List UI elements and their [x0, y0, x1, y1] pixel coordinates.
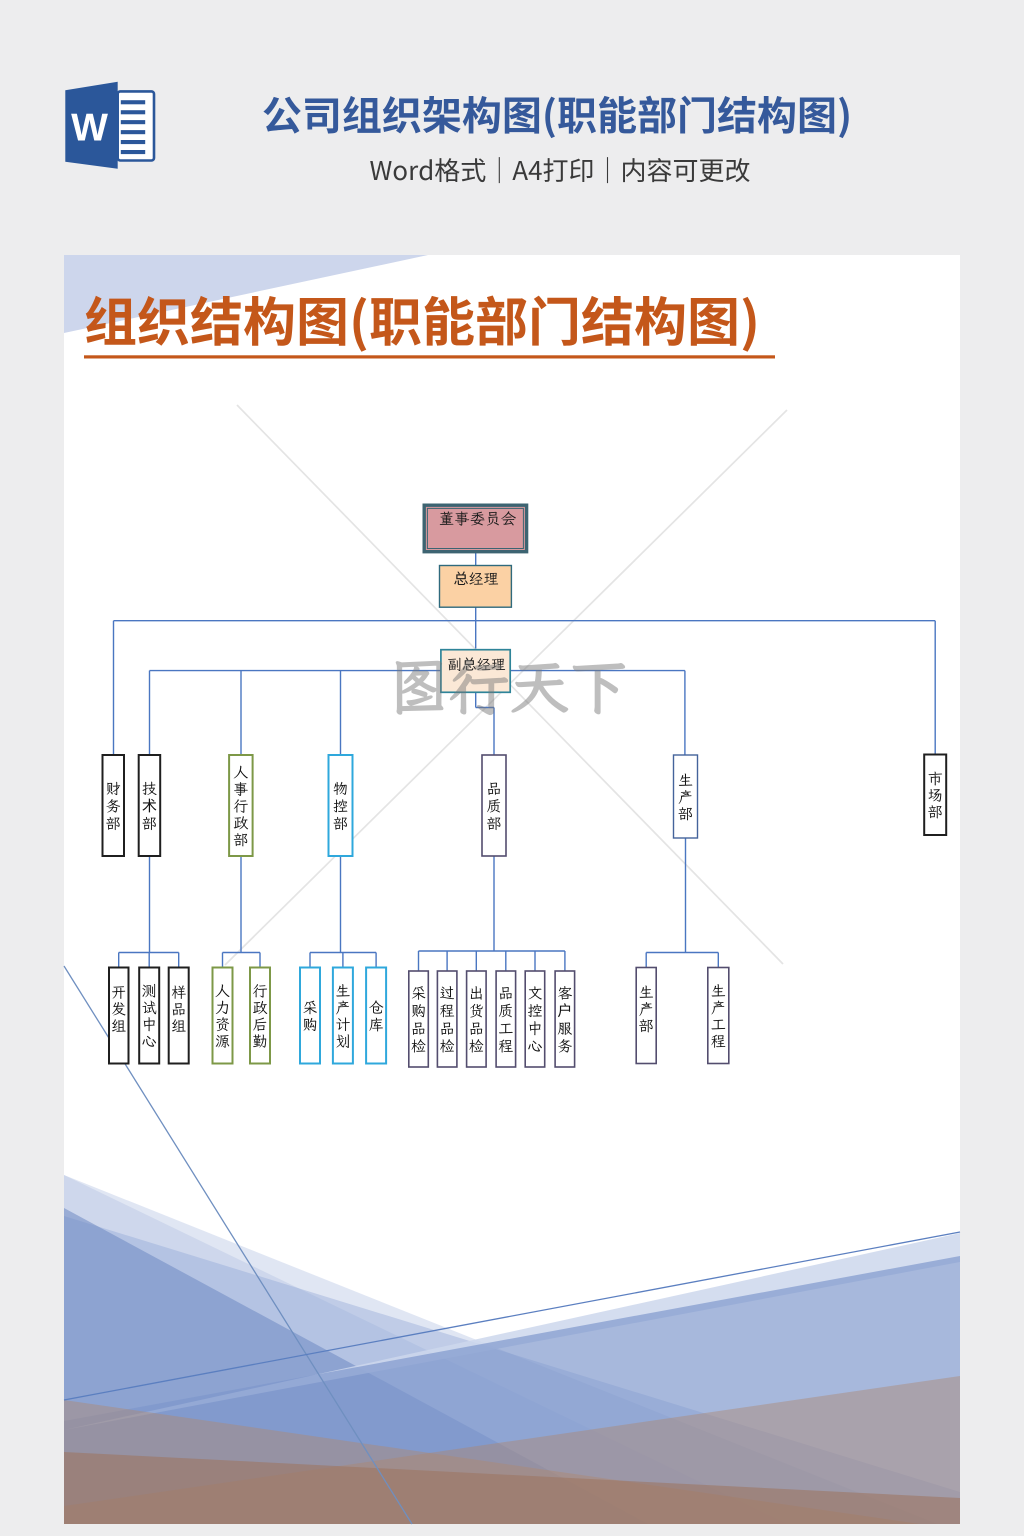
svg-text:W: W — [71, 107, 108, 150]
